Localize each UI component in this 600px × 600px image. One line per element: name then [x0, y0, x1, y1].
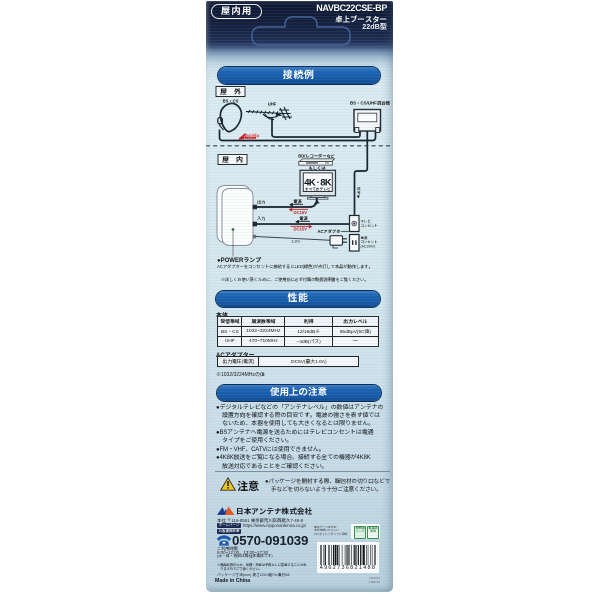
- svg-text:ACアダプター: ACアダプター: [318, 229, 345, 234]
- svg-text:DC15V: DC15V: [294, 226, 308, 231]
- svg-text:DC15V: DC15V: [246, 133, 260, 138]
- svg-text:UHF: UHF: [268, 102, 277, 107]
- svg-text:DC15V: DC15V: [294, 210, 308, 215]
- svg-text:外: 外: [233, 87, 242, 96]
- svg-text:電源: 電源: [294, 199, 303, 204]
- svg-text:電源: 電源: [300, 216, 309, 221]
- svg-text:屋: 屋: [222, 156, 230, 164]
- svg-text:屋: 屋: [220, 88, 228, 96]
- svg-text:1.2m: 1.2m: [291, 239, 301, 244]
- svg-text:もしくは: もしくは: [309, 165, 326, 170]
- svg-text:内: 内: [236, 156, 244, 164]
- svg-text:すべてのテレビ: すべてのテレビ: [305, 186, 331, 191]
- svg-text:BS・CS/UHF混合器: BS・CS/UHF混合器: [350, 100, 391, 106]
- svg-text:号: 号: [357, 191, 361, 195]
- svg-text:コンセント: コンセント: [361, 224, 379, 228]
- svg-text:出力: 出力: [257, 200, 265, 205]
- svg-text:BD/レコーダーなど: BD/レコーダーなど: [298, 154, 335, 159]
- svg-text:入力: 入力: [257, 216, 265, 221]
- svg-text:(AC100V): (AC100V): [361, 244, 376, 248]
